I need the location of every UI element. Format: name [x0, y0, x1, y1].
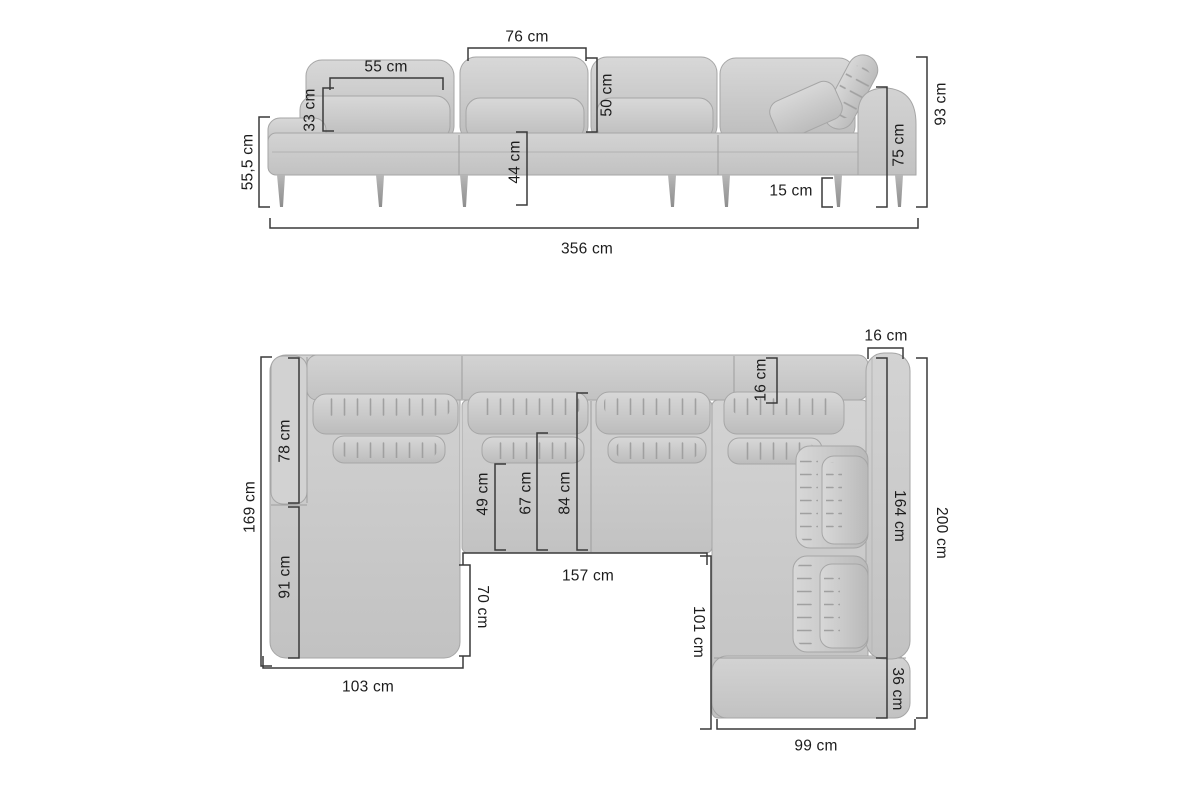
dim-label-armrest-height: 75 cm	[891, 123, 907, 166]
dim-label-total-width: 356 cm	[561, 241, 613, 257]
dim-label-right-bottom-width: 99 cm	[794, 738, 837, 754]
dim-label-left-back-length: 78 cm	[277, 419, 293, 462]
dim-label-chaise-width: 103 cm	[342, 679, 394, 695]
diagram-drawing	[0, 0, 1200, 800]
dim-label-end-section: 36 cm	[889, 667, 905, 710]
dim-label-pillow-width: 55 cm	[364, 59, 407, 75]
dim-label-seat-depth-full: 84 cm	[557, 471, 573, 514]
sofa-dimension-diagram: 76 cm 55 cm 33 cm 50 cm 44 cm 55,5 cm 75…	[0, 0, 1200, 800]
plan-view-sofa	[270, 353, 910, 718]
dim-label-left-side-total: 169 cm	[242, 481, 258, 533]
dim-label-pillow-height: 33 cm	[302, 88, 318, 131]
dim-label-total-height: 93 cm	[933, 82, 949, 125]
dim-label-right-inner-length: 101 cm	[690, 606, 706, 658]
dim-label-right-arm-length: 164 cm	[891, 490, 907, 542]
dim-label-chaise-inner-depth: 70 cm	[474, 585, 490, 628]
dim-label-cushion-width: 76 cm	[505, 29, 548, 45]
dim-label-chaise-length: 91 cm	[277, 555, 293, 598]
dim-label-side-height: 55,5 cm	[240, 134, 256, 191]
dim-label-backrest-height: 50 cm	[599, 73, 615, 116]
dim-label-right-side-total: 200 cm	[933, 507, 949, 559]
dim-label-seat-depth-mid: 67 cm	[518, 471, 534, 514]
dim-label-armrest-width: 16 cm	[864, 328, 907, 344]
dim-label-seat-depth-front: 49 cm	[475, 472, 491, 515]
dim-label-backrest-depth: 16 cm	[753, 358, 769, 401]
dim-label-seat-height: 44 cm	[507, 140, 523, 183]
dim-label-leg-height: 15 cm	[769, 183, 812, 199]
dim-label-middle-width: 157 cm	[562, 568, 614, 584]
